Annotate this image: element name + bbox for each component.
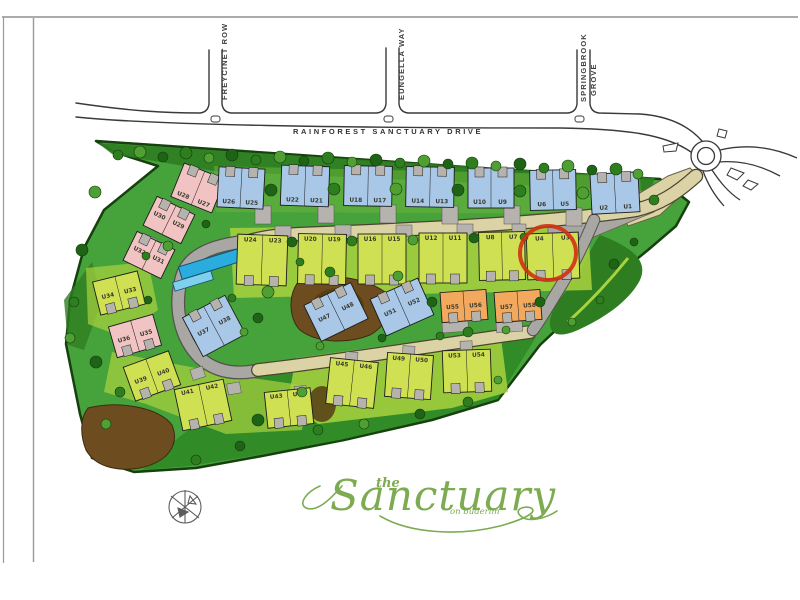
tree-icon [251, 155, 261, 165]
building-u49-u50: U49U50 [384, 352, 433, 400]
tree-icon [378, 334, 386, 342]
tree-icon [494, 376, 502, 384]
garage [621, 171, 631, 181]
tree-icon [274, 151, 286, 163]
tree-icon [235, 441, 245, 451]
garage [313, 165, 322, 175]
driveway-pad [380, 205, 396, 223]
tree-icon [596, 296, 604, 304]
tree-icon [539, 163, 549, 173]
traffic-island [727, 168, 744, 180]
garage [305, 275, 314, 285]
street-label-springbrook-1: SPRINGBROOK [579, 33, 588, 102]
tree-icon [514, 185, 526, 197]
tree-icon [577, 187, 589, 199]
tree-icon [370, 154, 382, 166]
tree-icon [630, 238, 638, 246]
tree-icon [609, 259, 619, 269]
garage [269, 276, 278, 286]
tree-icon [328, 183, 340, 195]
tree-icon [76, 244, 88, 256]
garage [451, 383, 460, 393]
building-u14-u13: U14U13 [406, 166, 455, 208]
tree-icon [313, 425, 323, 435]
tree-icon [408, 235, 418, 245]
garage [414, 166, 423, 176]
tree-icon [418, 155, 430, 167]
tree-icon [265, 184, 277, 196]
tree-icon [240, 328, 248, 336]
garage [274, 418, 284, 429]
tree-icon [568, 318, 576, 326]
building-u26-u25: U26U25 [217, 166, 265, 209]
roundabout-arm-se-2 [703, 171, 724, 206]
building-u57-u58: U57U58 [494, 289, 542, 323]
tree-icon [316, 342, 324, 350]
tree-icon [158, 152, 168, 162]
garage [376, 165, 385, 175]
garage [502, 312, 512, 323]
tree-icon [142, 252, 150, 260]
garage [525, 311, 535, 322]
driveway-pad [566, 208, 582, 226]
garage [475, 382, 484, 392]
tree-icon [427, 297, 437, 307]
garage [226, 166, 236, 176]
garage [597, 172, 607, 182]
tree-icon [65, 333, 75, 343]
tree-icon [463, 397, 473, 407]
tree-icon [253, 313, 263, 323]
street-label-eungella-way: EUNGELLA WAY [397, 27, 406, 100]
tree-icon [226, 149, 238, 161]
tree-icon [180, 147, 192, 159]
logo-name: Sanctuary [330, 471, 556, 520]
tree-icon [452, 184, 464, 196]
street-label-freycinet-row: FREYCINET ROW [220, 23, 229, 100]
driveway-pad [504, 206, 520, 224]
tree-icon [514, 158, 526, 170]
tree-icon [491, 161, 501, 171]
median-island [384, 116, 393, 122]
garage [414, 389, 424, 400]
tree-icon [610, 163, 622, 175]
street-label-springbrook-2: GROVE [589, 63, 598, 96]
building-u10-u9: U10U9 [468, 167, 514, 208]
tree-icon [191, 455, 201, 465]
garage [451, 274, 460, 284]
estate-logo: the Sanctuary on buderim [303, 471, 557, 532]
main-road-edge-4 [590, 50, 702, 141]
tree-icon [390, 183, 402, 195]
main-road-edge-3 [399, 48, 577, 113]
tree-icon [134, 146, 146, 158]
tree-icon [562, 160, 574, 172]
tree-icon [649, 195, 659, 205]
street-label-rainforest-sanctuary-drive: RAINFOREST SANCTUARY DRIVE [293, 127, 483, 136]
building-u18-u17: U18U17 [344, 165, 393, 207]
garage [509, 271, 518, 281]
driveway-pad [318, 205, 334, 223]
tree-icon [163, 241, 173, 251]
driveway-pad [227, 382, 242, 395]
building-u12-u11: U12U11 [419, 233, 467, 284]
driveway-pad [442, 206, 458, 224]
garage [471, 311, 481, 322]
tree-icon [299, 156, 309, 166]
tree-icon [262, 286, 274, 298]
building-u6-u5: U6U5 [530, 169, 577, 211]
tree-icon [393, 271, 403, 281]
tree-icon [359, 419, 369, 429]
tree-icon [202, 220, 210, 228]
tree-icon [535, 297, 545, 307]
building-u45-u46: U45U46 [326, 358, 379, 410]
main-road-top-edge [76, 50, 209, 113]
tree-icon [633, 169, 643, 179]
garage [249, 167, 259, 177]
building-u2-u1: U2U1 [590, 171, 640, 214]
median-island [211, 116, 220, 122]
tree-icon [587, 165, 597, 175]
garage [366, 275, 375, 285]
tree-icon [69, 297, 79, 307]
tree-icon [297, 387, 307, 397]
logo-tagline: on buderim [450, 507, 500, 517]
tree-icon [90, 356, 102, 368]
garage [357, 398, 367, 409]
traffic-island [663, 143, 678, 152]
building-u22-u21: U22U21 [280, 164, 329, 207]
garage [448, 312, 458, 323]
tree-icon [463, 327, 473, 337]
main-road-edge-2 [222, 48, 386, 113]
garage [475, 167, 484, 177]
tree-icon [322, 152, 334, 164]
mulch-garden-southwest [82, 405, 175, 469]
garage [289, 164, 298, 174]
garage [213, 413, 224, 425]
building-u53-u54: U53U54 [442, 349, 491, 394]
tree-icon [144, 296, 152, 304]
roundabout-inner [698, 148, 715, 165]
tree-icon [204, 153, 214, 163]
tree-icon [347, 157, 357, 167]
tree-icon [287, 237, 297, 247]
garage [391, 388, 401, 399]
garage [297, 415, 307, 426]
tree-icon [469, 233, 479, 243]
tree-icon [325, 267, 335, 277]
tree-icon [101, 419, 111, 429]
building-u55-u56: U55U56 [440, 289, 488, 323]
tree-icon [252, 414, 264, 426]
public-roads [76, 48, 702, 152]
tree-icon [89, 186, 101, 198]
tree-icon [228, 294, 236, 302]
tree-icon [415, 409, 425, 419]
garage [244, 275, 253, 285]
compass-needle-outline [188, 496, 196, 504]
garage [427, 274, 436, 284]
traffic-island [717, 129, 727, 138]
site-plan-map: FREYCINET ROW EUNGELLA WAY SPRINGBROOK G… [0, 0, 800, 600]
street-labels: FREYCINET ROW EUNGELLA WAY SPRINGBROOK G… [220, 23, 598, 136]
tree-icon [436, 332, 444, 340]
tree-icon [395, 158, 405, 168]
tree-icon [115, 387, 125, 397]
tree-icon [113, 150, 123, 160]
tree-icon [502, 326, 510, 334]
median-island [575, 116, 584, 122]
garage [189, 418, 200, 430]
compass-rose [169, 490, 201, 523]
garage [486, 271, 495, 281]
building-u20-u19: U20U19 [298, 234, 347, 286]
building-u24-u23: U24U23 [236, 234, 288, 287]
garage [333, 395, 343, 406]
tree-icon [347, 236, 357, 246]
roundabout-arm-east-top [720, 147, 797, 158]
traffic-island [743, 180, 758, 190]
tree-icon [466, 157, 478, 169]
tree-icon [296, 258, 304, 266]
tree-icon [443, 159, 453, 169]
